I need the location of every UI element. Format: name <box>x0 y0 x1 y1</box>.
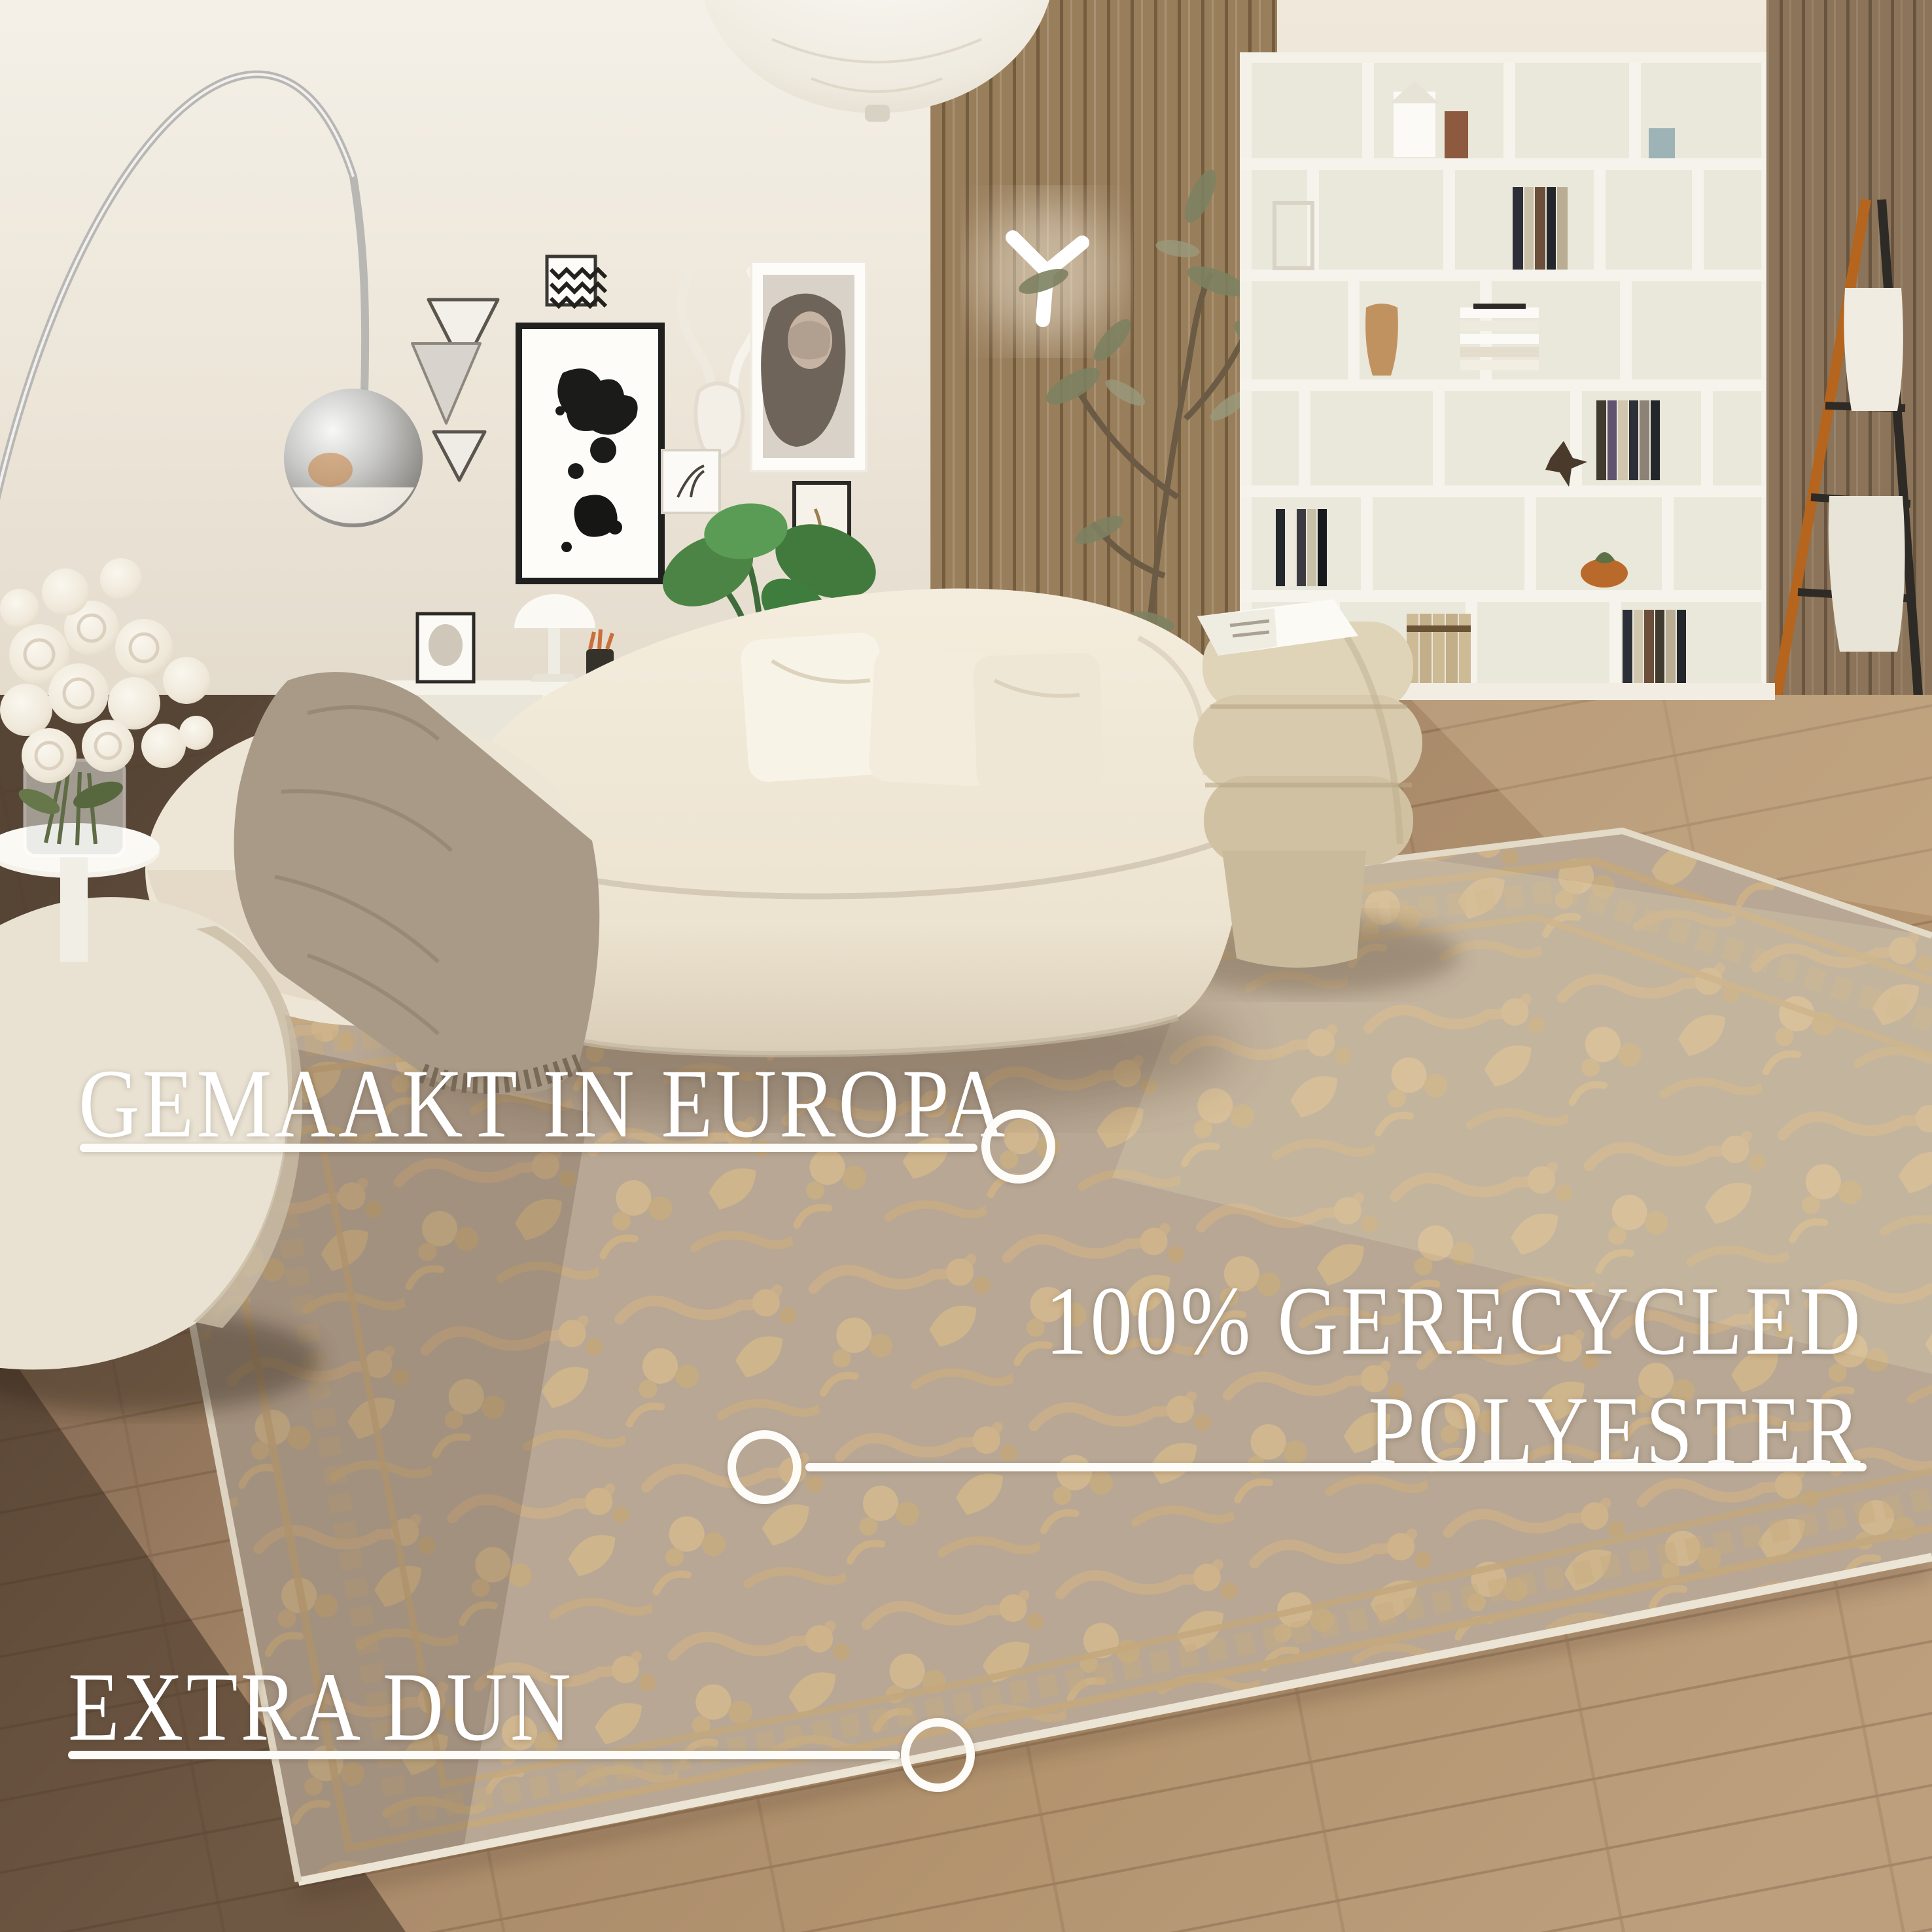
thin-label: EXTRA DUN <box>68 1658 656 1756</box>
thin-line <box>68 1751 900 1759</box>
console-frame-photo <box>417 614 474 682</box>
living-room-scene <box>0 0 1932 1932</box>
small-frame-botanical <box>662 450 720 513</box>
chevron-frame <box>547 256 606 306</box>
portrait-frame <box>751 262 866 471</box>
product-photo: GEMAAKT IN EUROPA 100% GERECYCLED POLYES… <box>0 0 1932 1932</box>
callout-circle-icon <box>981 1110 1055 1184</box>
callout-circle-icon <box>901 1718 975 1792</box>
ladder-towel-upper <box>1844 288 1903 411</box>
splatter-art-frame <box>519 326 661 581</box>
ladder-towel-lower <box>1829 496 1905 652</box>
callout-circle-icon <box>728 1430 801 1504</box>
made-in-line <box>80 1144 977 1152</box>
material-line <box>805 1463 1867 1471</box>
material-label: 100% GERECYCLED POLYESTER <box>912 1272 1863 1480</box>
sofa-pillows <box>740 631 1104 792</box>
